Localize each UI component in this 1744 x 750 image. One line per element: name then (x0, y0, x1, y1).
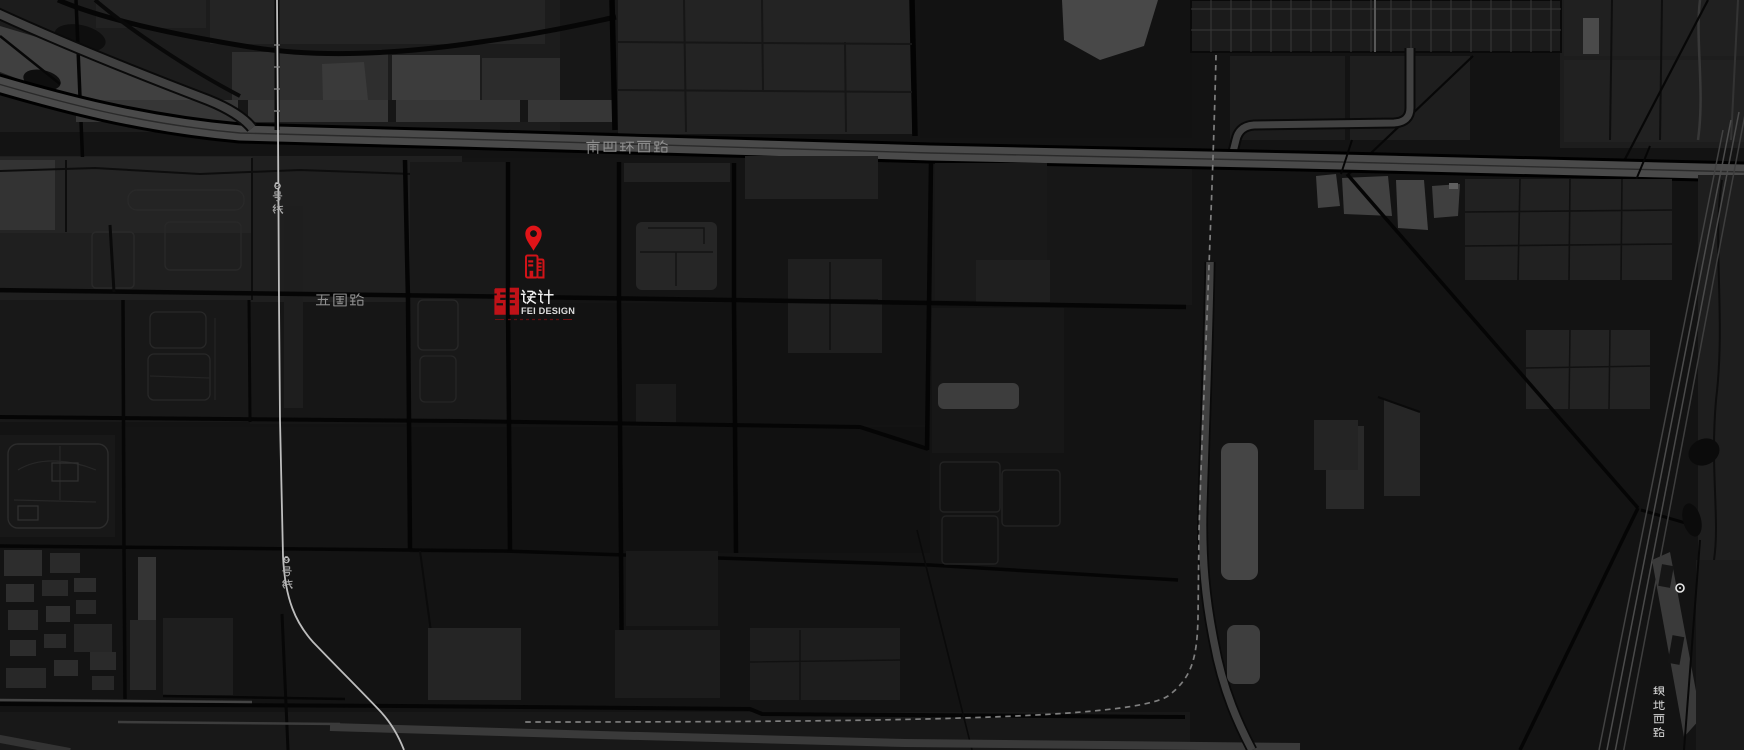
svg-text:9: 9 (274, 181, 280, 192)
svg-text:FEI DESIGN: FEI DESIGN (521, 306, 575, 316)
svg-text:9: 9 (284, 555, 290, 566)
